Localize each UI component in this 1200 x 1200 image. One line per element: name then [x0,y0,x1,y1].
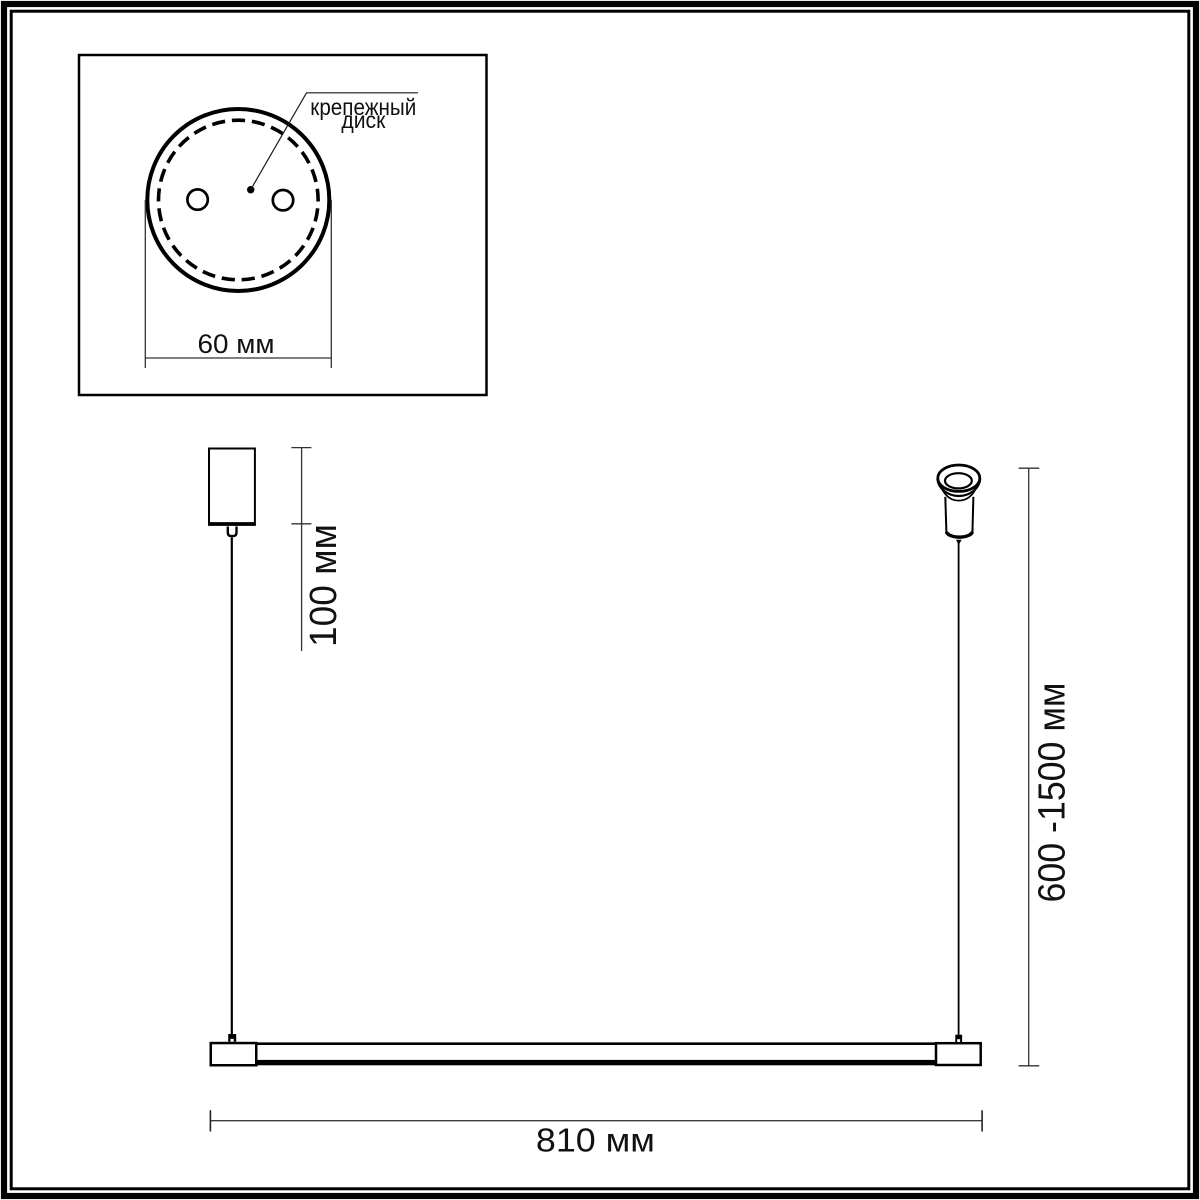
svg-text:диск: диск [341,107,386,133]
svg-text:810 мм: 810 мм [536,1122,655,1159]
svg-text:60 мм: 60 мм [198,329,275,359]
svg-text:100 мм: 100 мм [303,524,345,647]
svg-text:600 -1500 мм: 600 -1500 мм [1031,683,1073,903]
